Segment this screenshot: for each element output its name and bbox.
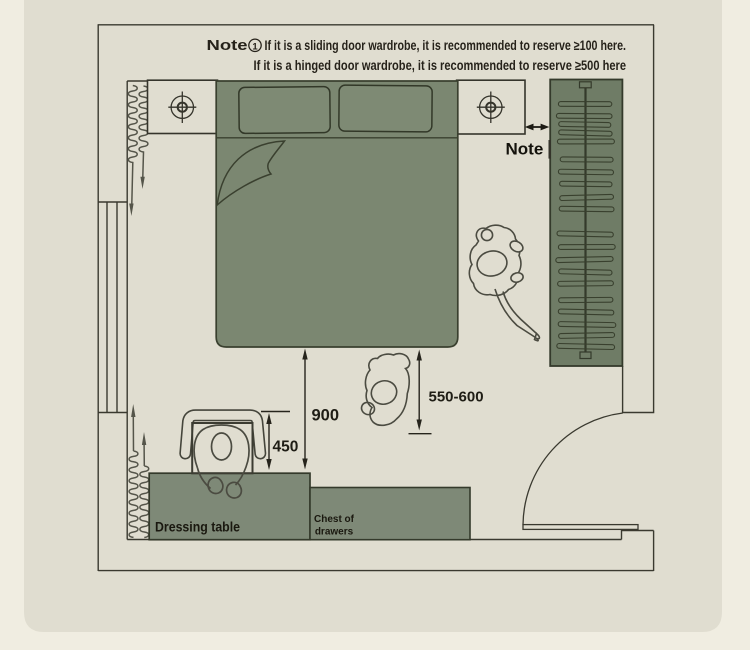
svg-text:1: 1 <box>252 41 258 52</box>
svg-text:Note: Note <box>506 140 544 159</box>
svg-text:Note: Note <box>207 38 248 54</box>
svg-text:If it is a hinged door wardrob: If it is a hinged door wardrobe, it is r… <box>254 58 627 73</box>
svg-text:550-600: 550-600 <box>429 389 484 406</box>
svg-text:900: 900 <box>312 407 340 425</box>
svg-text:drawers: drawers <box>315 527 354 538</box>
svg-text:450: 450 <box>273 439 299 456</box>
svg-text:Chest of: Chest of <box>314 514 355 525</box>
svg-text:If it is a sliding door wardro: If it is a sliding door wardrobe, it is … <box>265 38 627 53</box>
svg-text:Dressing table: Dressing table <box>155 519 240 535</box>
